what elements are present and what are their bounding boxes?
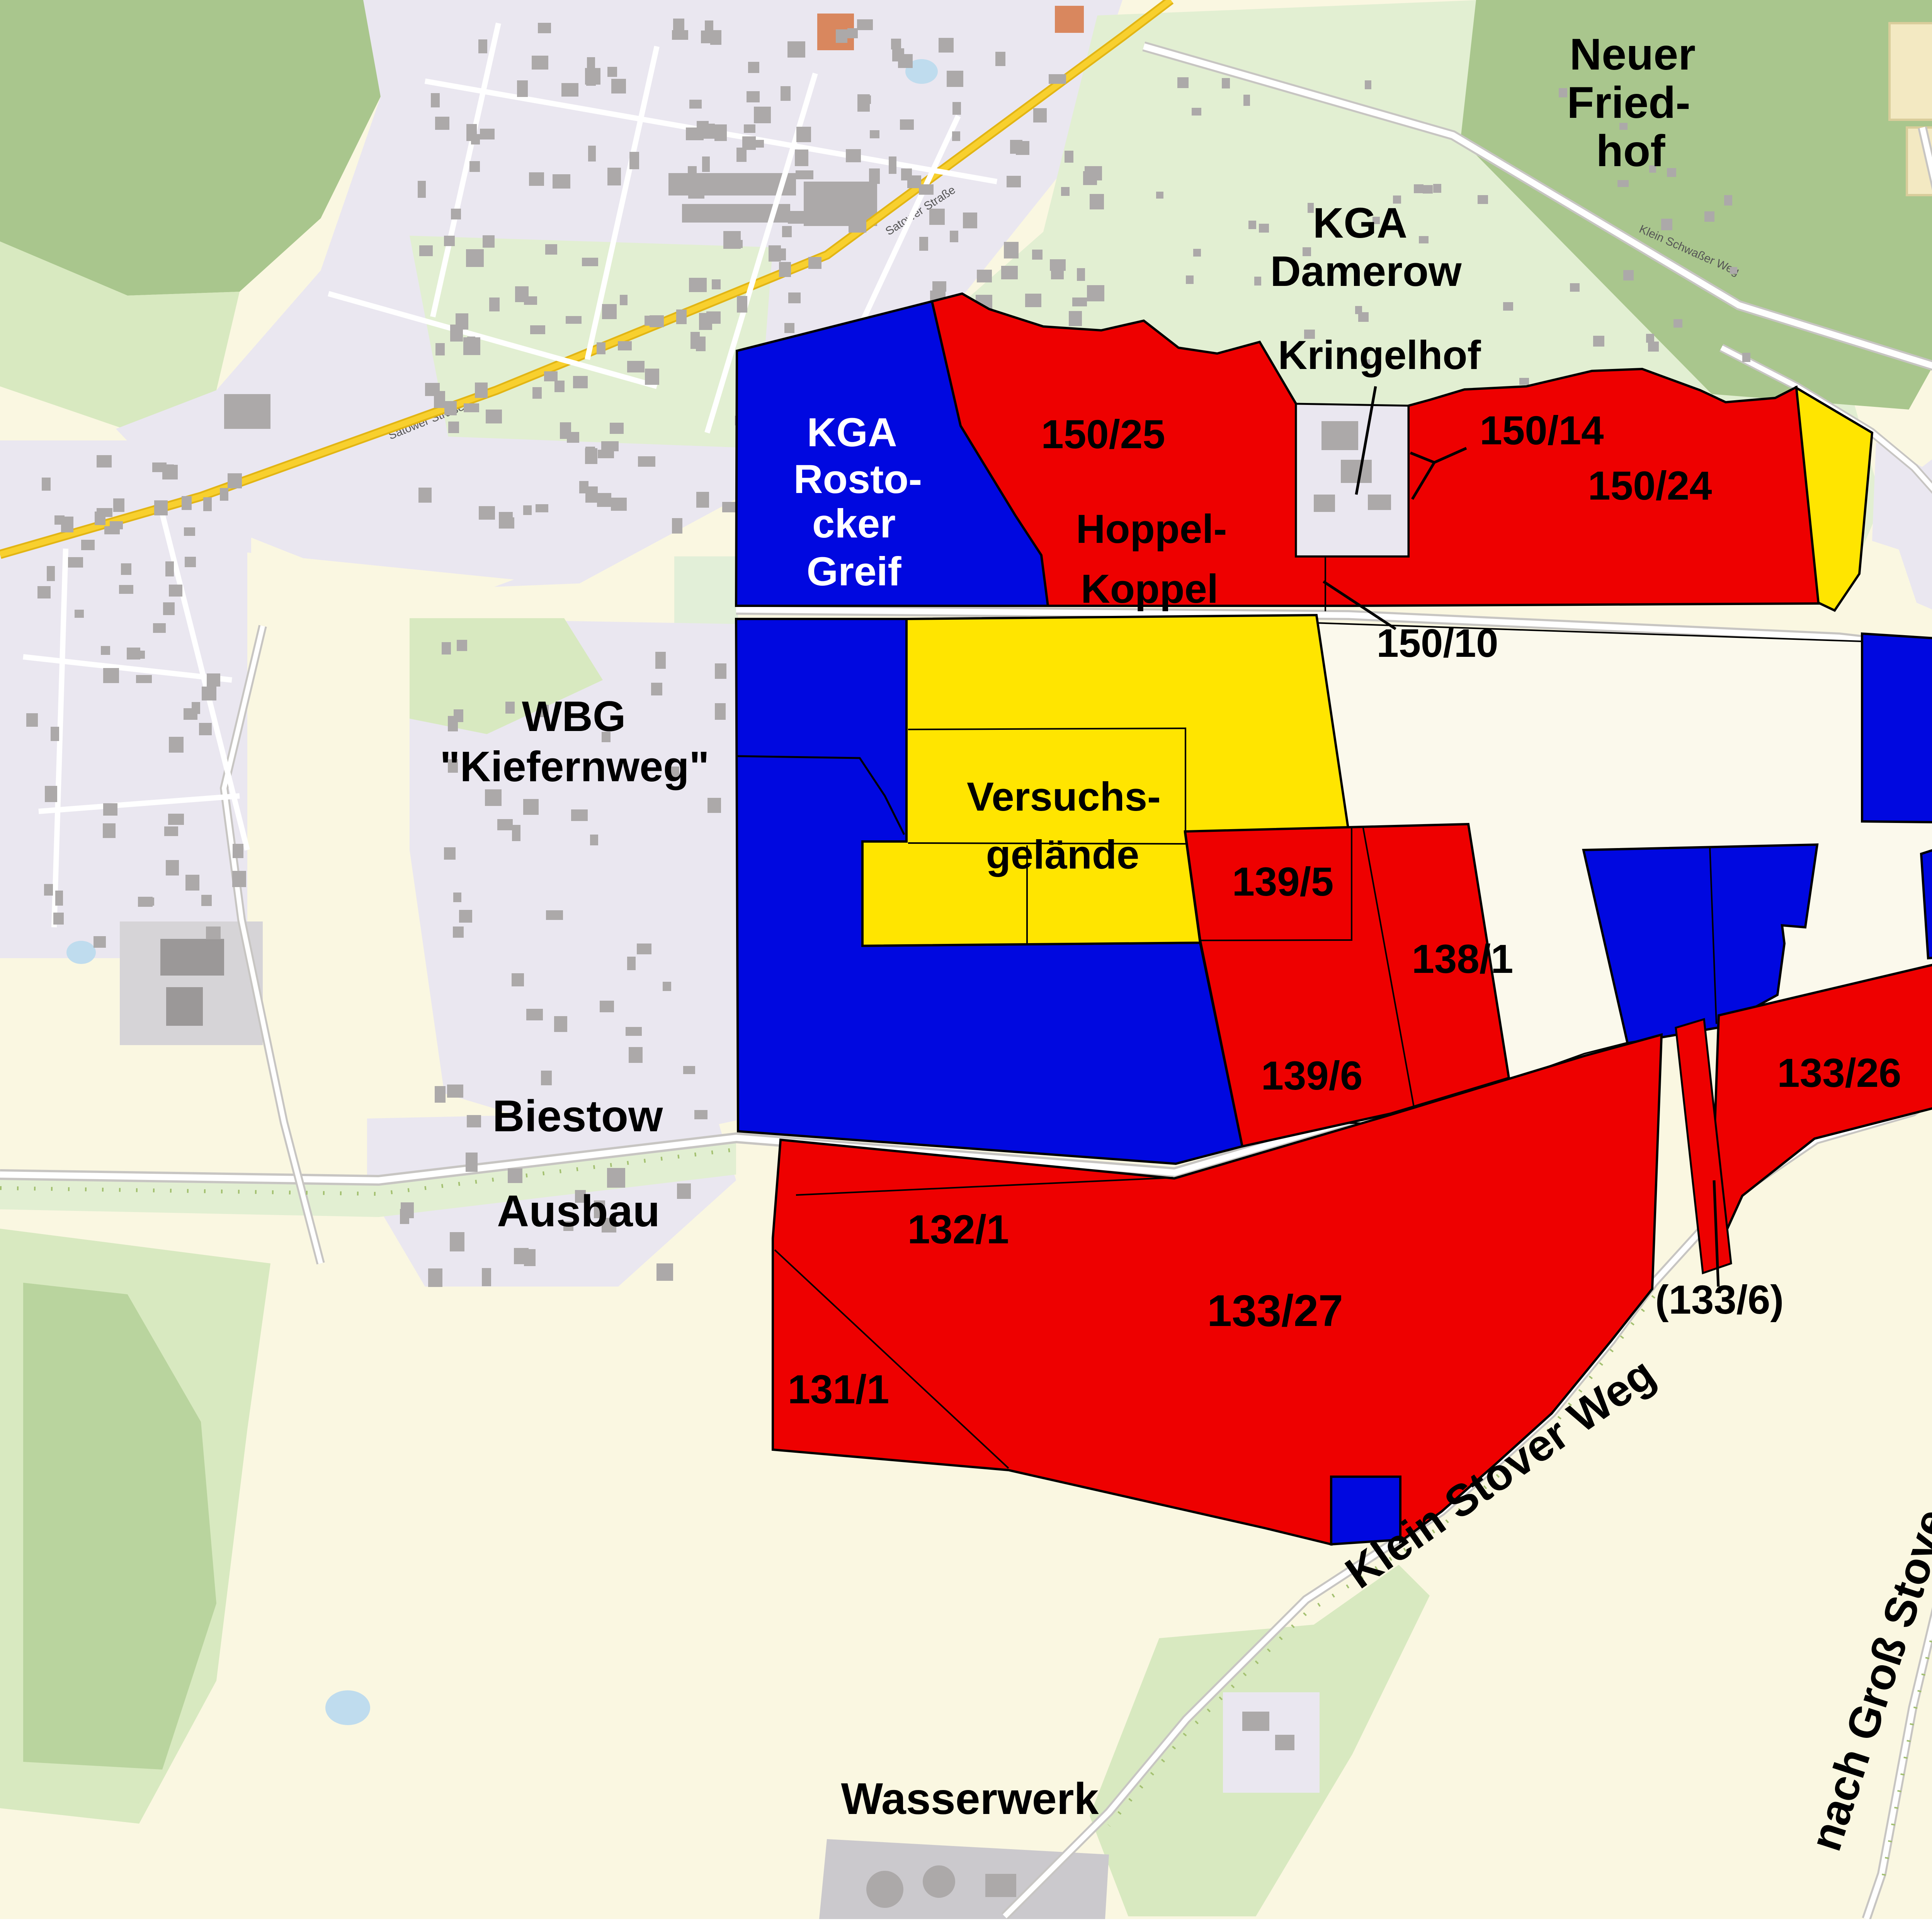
svg-text:131/1: 131/1	[788, 1367, 889, 1412]
svg-text:cker: cker	[812, 501, 896, 546]
svg-text:138/1: 138/1	[1412, 937, 1514, 982]
svg-text:133/27: 133/27	[1207, 1286, 1343, 1336]
svg-text:"Kiefernweg": "Kiefernweg"	[440, 743, 709, 790]
svg-text:150/14: 150/14	[1480, 408, 1604, 453]
svg-text:Koppel: Koppel	[1081, 566, 1218, 612]
svg-text:hof: hof	[1596, 126, 1665, 176]
svg-text:Wasserwerk: Wasserwerk	[841, 1774, 1099, 1824]
svg-text:139/5: 139/5	[1232, 859, 1334, 904]
svg-text:Hoppel-: Hoppel-	[1076, 507, 1227, 552]
svg-text:Neuer: Neuer	[1570, 30, 1696, 79]
svg-text:Damerow: Damerow	[1270, 248, 1462, 295]
svg-text:Rosto-: Rosto-	[794, 457, 922, 502]
svg-text:150/25: 150/25	[1041, 412, 1165, 457]
svg-text:133/26: 133/26	[1777, 1051, 1901, 1096]
svg-text:Greif: Greif	[806, 549, 901, 594]
svg-text:WBG: WBG	[522, 693, 626, 740]
svg-text:132/1: 132/1	[908, 1207, 1009, 1252]
svg-text:Versuchs-: Versuchs-	[967, 774, 1161, 819]
svg-text:139/6: 139/6	[1261, 1053, 1363, 1098]
svg-text:Kringelhof: Kringelhof	[1278, 333, 1481, 378]
svg-text:150/10: 150/10	[1376, 621, 1498, 665]
svg-text:KGA: KGA	[807, 410, 897, 455]
svg-text:Fried-: Fried-	[1567, 78, 1690, 127]
svg-text:KGA: KGA	[1313, 199, 1407, 247]
svg-text:Biestow: Biestow	[493, 1091, 663, 1141]
svg-text:Ausbau: Ausbau	[497, 1187, 660, 1236]
svg-text:(133/6): (133/6)	[1655, 1277, 1784, 1323]
svg-text:150/24: 150/24	[1588, 463, 1712, 508]
svg-text:gelände: gelände	[986, 832, 1139, 877]
